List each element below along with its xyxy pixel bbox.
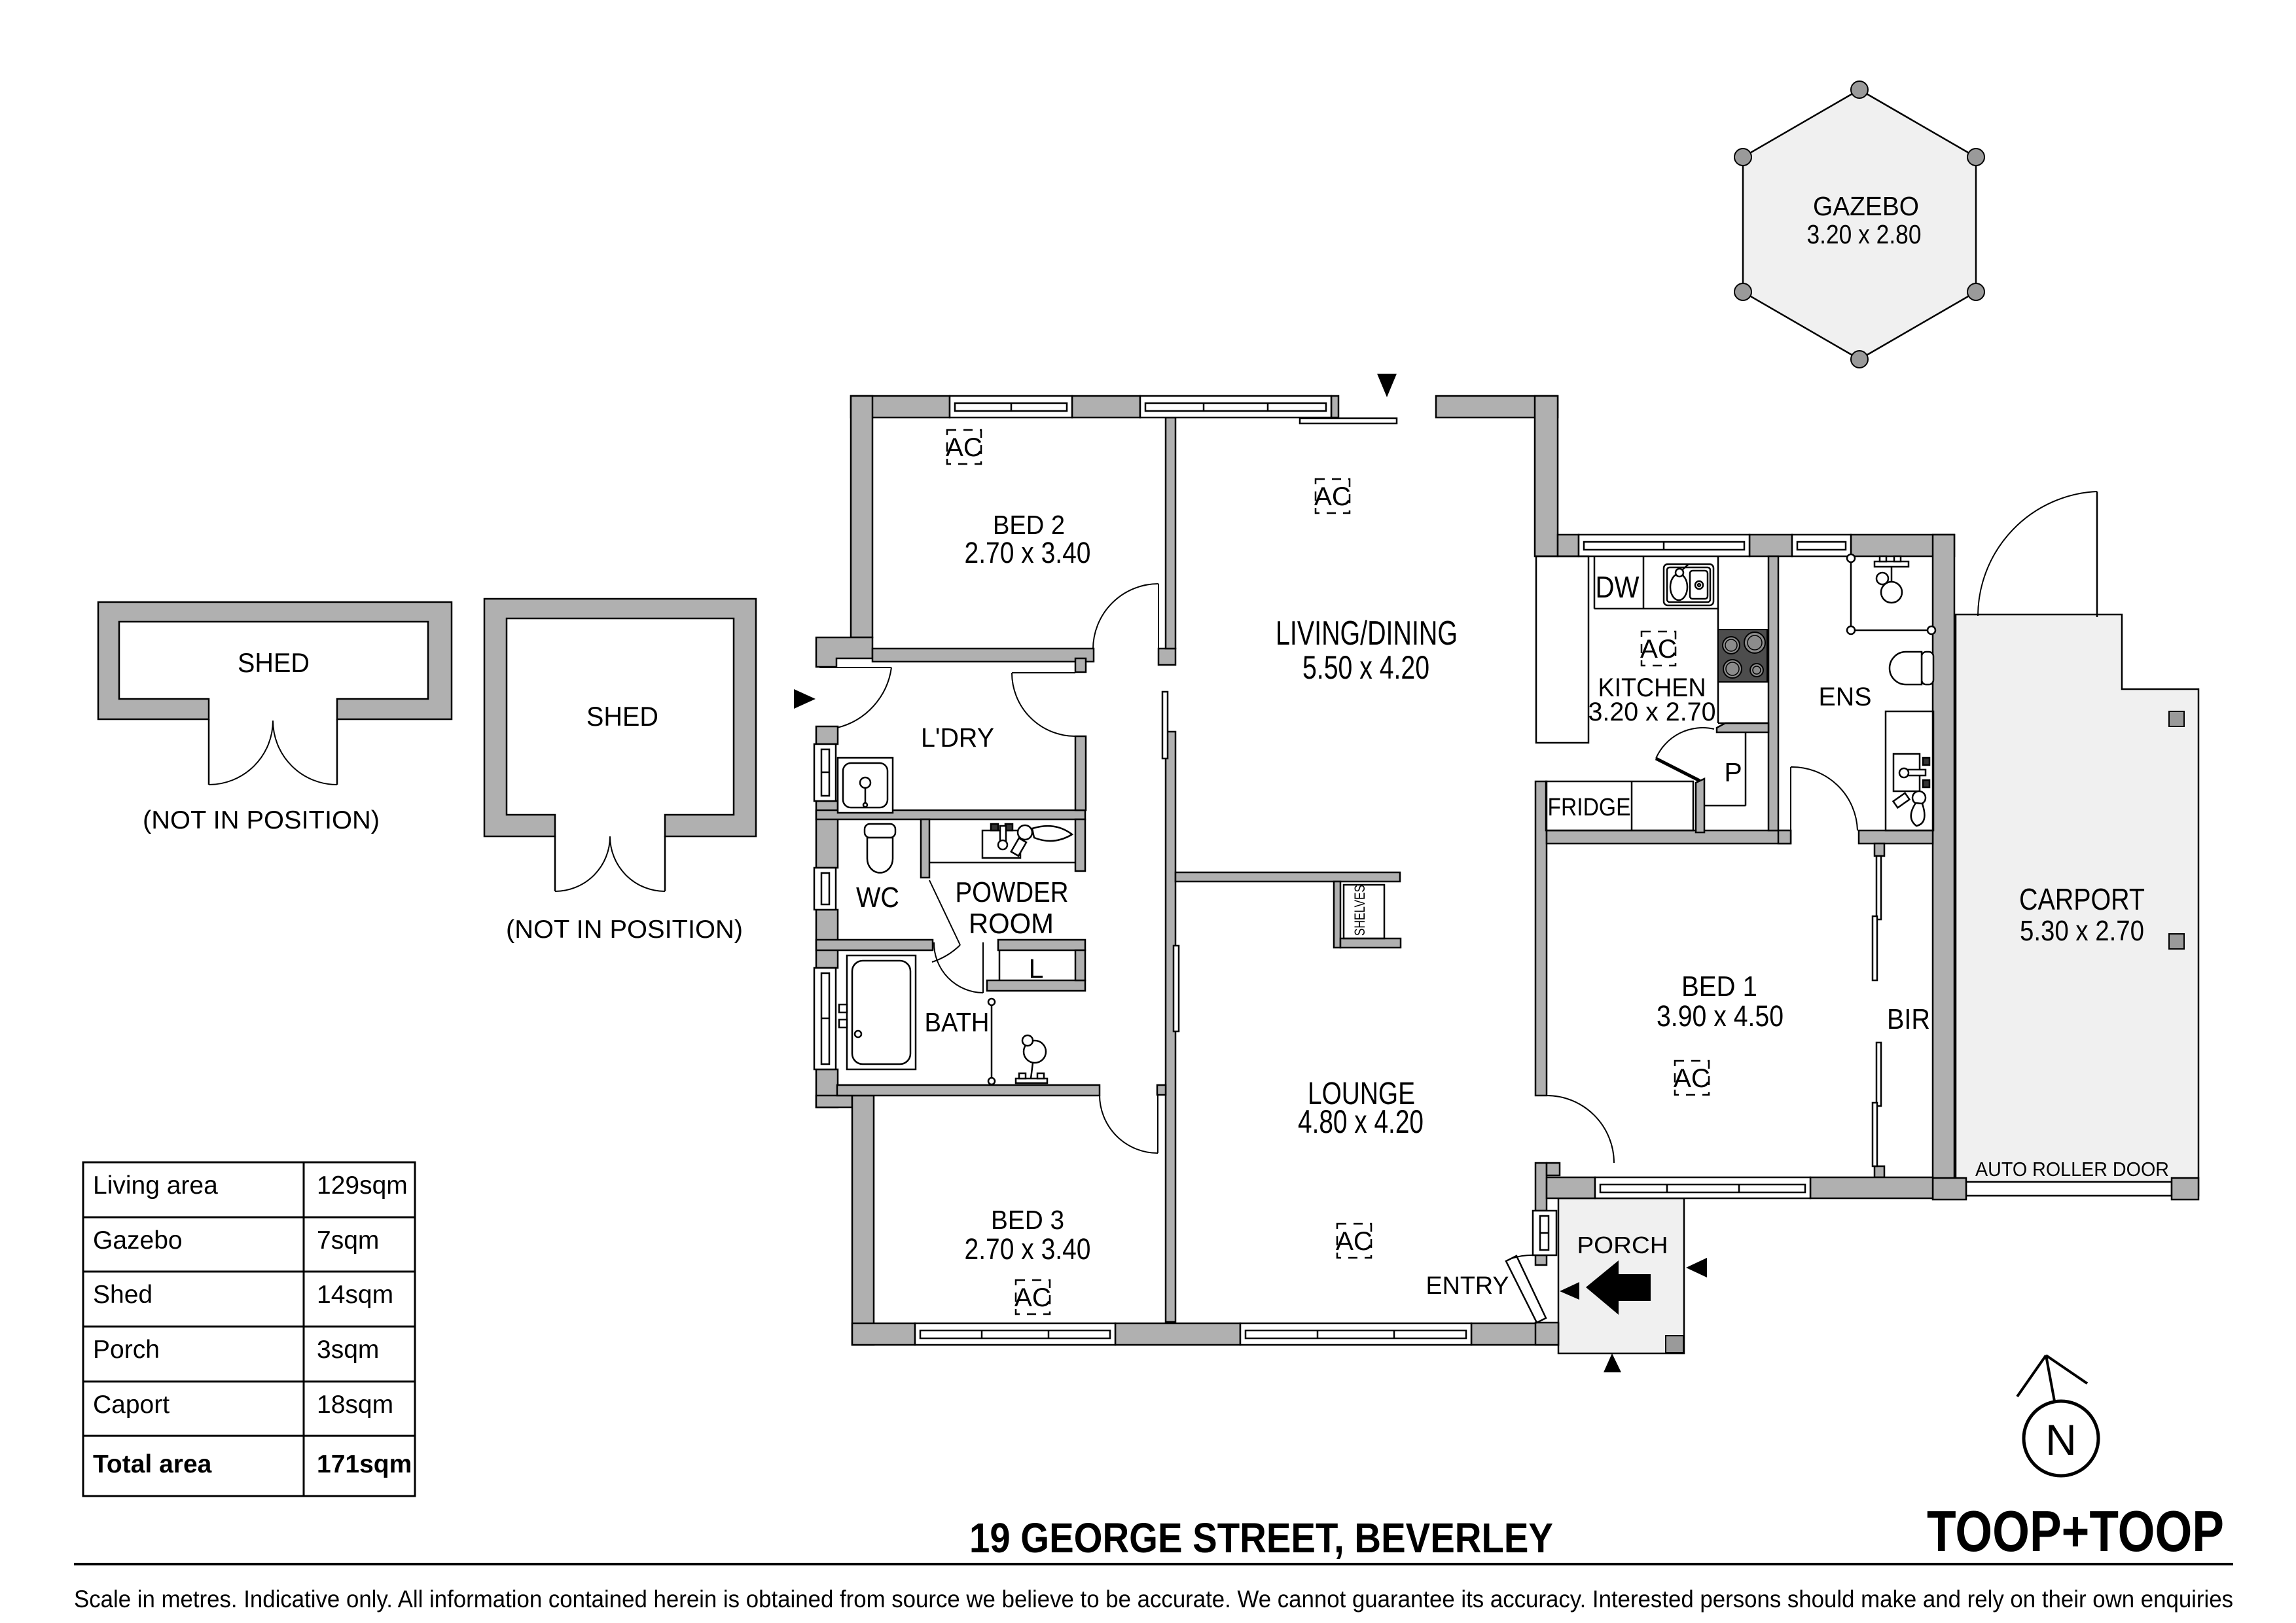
svg-text:ENTRY: ENTRY xyxy=(1426,1272,1509,1300)
svg-text:SHELVES: SHELVES xyxy=(1352,885,1368,936)
svg-text:Gazebo: Gazebo xyxy=(93,1226,183,1255)
svg-text:BATH: BATH xyxy=(925,1007,990,1037)
svg-text:AC: AC xyxy=(1674,1064,1710,1093)
svg-text:L: L xyxy=(1029,954,1044,984)
svg-text:SHED: SHED xyxy=(586,701,658,732)
svg-text:P: P xyxy=(1724,757,1742,787)
svg-text:19 GEORGE STREET, BEVERLEY: 19 GEORGE STREET, BEVERLEY xyxy=(969,1514,1553,1561)
svg-text:14sqm: 14sqm xyxy=(317,1281,393,1309)
svg-text:Total area: Total area xyxy=(93,1450,212,1478)
svg-text:TOOP+TOOP: TOOP+TOOP xyxy=(1927,1499,2224,1563)
svg-text:WC: WC xyxy=(856,882,899,914)
svg-text:AC: AC xyxy=(1014,1283,1051,1312)
svg-text:3sqm: 3sqm xyxy=(317,1336,379,1364)
svg-text:Caport: Caport xyxy=(93,1391,170,1419)
svg-text:LIVING/DINING: LIVING/DINING xyxy=(1276,615,1458,652)
svg-text:5.30 x 2.70: 5.30 x 2.70 xyxy=(2020,915,2144,947)
svg-text:3.20 x 2.70: 3.20 x 2.70 xyxy=(1588,698,1716,726)
svg-text:Scale in metres. Indicative on: Scale in metres. Indicative only. All in… xyxy=(74,1586,2233,1613)
svg-text:CARPORT: CARPORT xyxy=(2019,882,2145,916)
svg-text:18sqm: 18sqm xyxy=(317,1391,393,1419)
svg-text:BED 3: BED 3 xyxy=(991,1205,1064,1235)
svg-text:SHED: SHED xyxy=(238,647,310,678)
svg-text:N: N xyxy=(2045,1416,2077,1464)
svg-text:BED 1: BED 1 xyxy=(1681,971,1757,1003)
svg-text:ROOM: ROOM xyxy=(969,908,1054,940)
svg-text:DW: DW xyxy=(1596,570,1640,604)
svg-text:3.90 x 4.50: 3.90 x 4.50 xyxy=(1657,999,1784,1033)
svg-text:PORCH: PORCH xyxy=(1577,1232,1668,1258)
svg-text:FRIDGE: FRIDGE xyxy=(1548,794,1631,821)
svg-text:7sqm: 7sqm xyxy=(317,1226,379,1255)
svg-text:2.70 x 3.40: 2.70 x 3.40 xyxy=(965,536,1091,569)
svg-text:GAZEBO: GAZEBO xyxy=(1813,191,1919,221)
svg-text:L'DRY: L'DRY xyxy=(921,722,994,753)
svg-text:5.50 x 4.20: 5.50 x 4.20 xyxy=(1302,649,1429,686)
svg-text:4.80 x 4.20: 4.80 x 4.20 xyxy=(1298,1103,1424,1140)
svg-text:Shed: Shed xyxy=(93,1281,152,1309)
svg-text:AC: AC xyxy=(1314,482,1351,511)
svg-text:AC: AC xyxy=(1640,635,1677,664)
svg-text:BIR: BIR xyxy=(1887,1003,1930,1035)
svg-text:2.70 x 3.40: 2.70 x 3.40 xyxy=(965,1232,1091,1266)
svg-text:(NOT IN POSITION): (NOT IN POSITION) xyxy=(506,916,743,944)
svg-text:3.20 x 2.80: 3.20 x 2.80 xyxy=(1807,219,1922,249)
svg-text:(NOT IN POSITION): (NOT IN POSITION) xyxy=(143,806,380,834)
svg-text:Living area: Living area xyxy=(93,1171,218,1200)
svg-text:POWDER: POWDER xyxy=(956,876,1069,908)
svg-text:AC: AC xyxy=(946,433,982,462)
svg-text:ENS: ENS xyxy=(1819,683,1872,711)
svg-text:Porch: Porch xyxy=(93,1336,160,1364)
svg-text:129sqm: 129sqm xyxy=(317,1171,408,1200)
svg-text:AUTO ROLLER DOOR: AUTO ROLLER DOOR xyxy=(1975,1158,2169,1181)
svg-text:AC: AC xyxy=(1336,1227,1372,1256)
svg-text:171sqm: 171sqm xyxy=(317,1450,412,1478)
